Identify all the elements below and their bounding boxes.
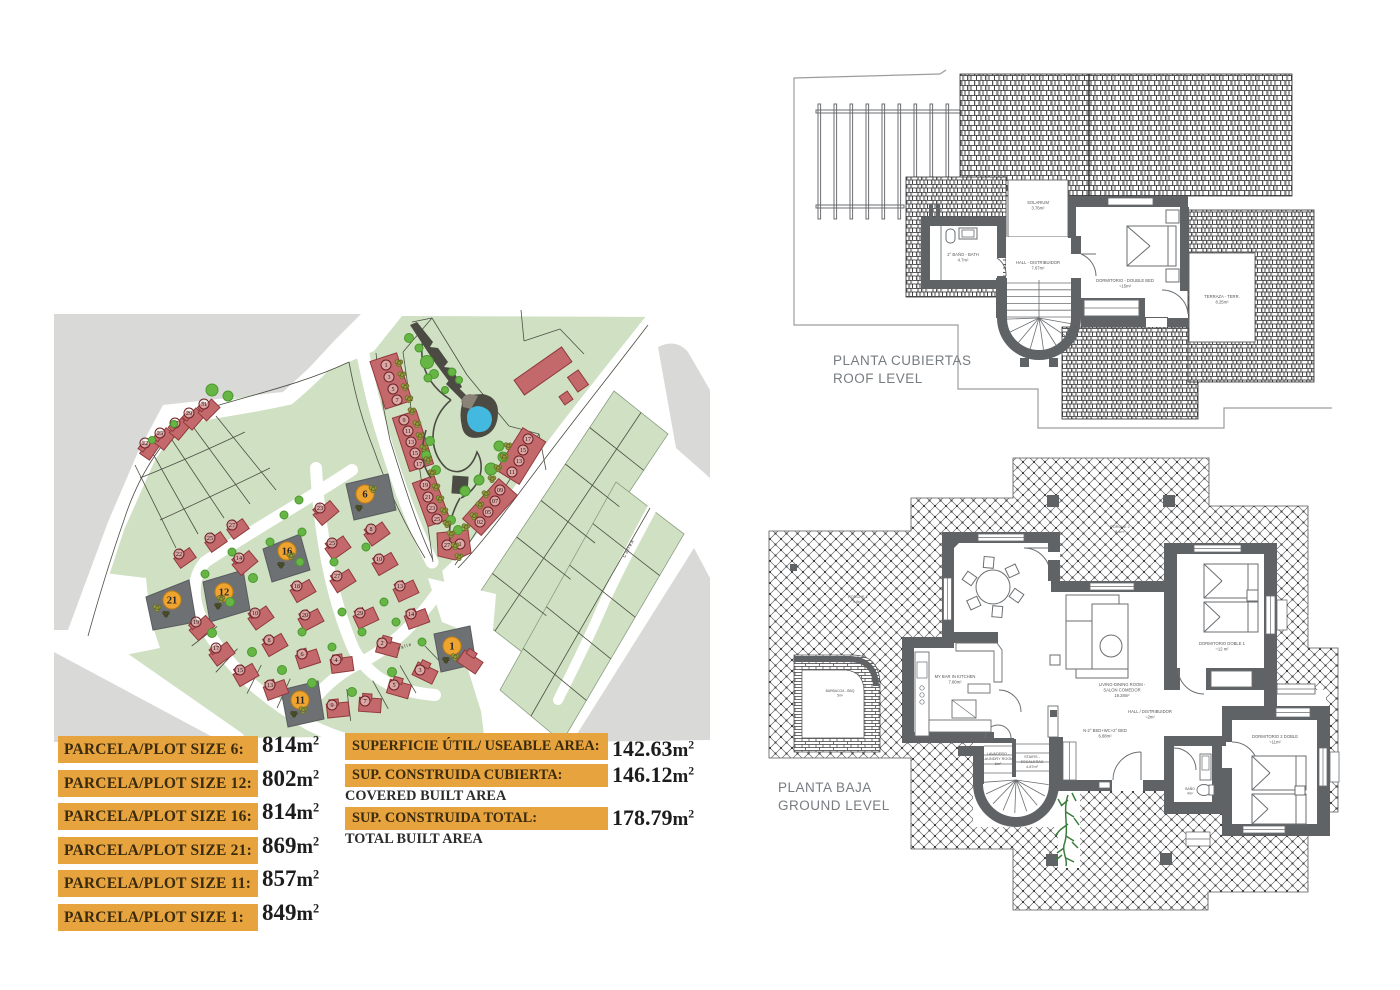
- svg-text:GROUND LEVEL: GROUND LEVEL: [778, 798, 890, 813]
- svg-text:ESCALERAS: ESCALERAS: [1021, 760, 1044, 764]
- svg-text:27: 27: [229, 522, 235, 529]
- svg-text:5m²: 5m²: [837, 694, 844, 698]
- svg-text:6: 6: [300, 651, 303, 658]
- svg-text:5: 5: [392, 682, 395, 689]
- svg-text:20: 20: [302, 612, 308, 619]
- svg-text:3: 3: [387, 374, 390, 381]
- svg-text:9: 9: [402, 417, 405, 424]
- svg-text:TERRAZA - TERR.: TERRAZA - TERR.: [1204, 294, 1240, 299]
- svg-text:LIVING-DINING ROOM -: LIVING-DINING ROOM -: [1099, 682, 1146, 687]
- svg-text:8: 8: [267, 637, 270, 644]
- svg-text:SALON COMEDOR: SALON COMEDOR: [1103, 687, 1140, 692]
- svg-text:21: 21: [167, 596, 178, 607]
- svg-text:DORMITORIO - DOUBLE BED: DORMITORIO - DOUBLE BED: [1096, 278, 1154, 283]
- svg-text:29: 29: [357, 610, 363, 617]
- svg-text:SOLARIUM: SOLARIUM: [1027, 200, 1049, 205]
- svg-text:13: 13: [408, 439, 414, 446]
- svg-text:18: 18: [294, 583, 300, 590]
- svg-text:27: 27: [444, 542, 450, 549]
- svg-text:22: 22: [142, 440, 148, 447]
- svg-text:15: 15: [412, 450, 418, 457]
- svg-text:9: 9: [330, 702, 333, 709]
- svg-text:1: 1: [449, 642, 454, 653]
- svg-text:HALL / DISTRIBUIDOR: HALL / DISTRIBUIDOR: [1128, 709, 1172, 714]
- svg-text:~12 m²: ~12 m²: [1215, 646, 1229, 651]
- svg-text:25: 25: [329, 540, 335, 547]
- svg-text:8.4m²: 8.4m²: [1115, 530, 1125, 534]
- svg-text:11: 11: [295, 696, 305, 707]
- svg-text:4: 4: [334, 657, 337, 664]
- svg-text:4m²: 4m²: [1187, 792, 1194, 796]
- svg-text:21: 21: [425, 494, 431, 501]
- svg-text:PORCHE 1: PORCHE 1: [848, 595, 867, 599]
- svg-text:DORMITORIO 2 DOBLE: DORMITORIO 2 DOBLE: [1252, 734, 1298, 739]
- svg-text:7: 7: [395, 397, 398, 404]
- svg-text:15: 15: [520, 447, 526, 454]
- svg-text:PLANTA BAJA: PLANTA BAJA: [778, 780, 872, 795]
- svg-text:4.87m²: 4.87m²: [1026, 765, 1039, 769]
- svg-text:4.7m²: 4.7m²: [958, 257, 969, 262]
- svg-text:BARBACOA - BBQ: BARBACOA - BBQ: [826, 689, 855, 693]
- svg-text:13: 13: [397, 583, 403, 590]
- svg-text:LAVADERO -: LAVADERO -: [987, 752, 1010, 756]
- svg-text:6: 6: [362, 490, 367, 501]
- svg-text:13: 13: [516, 458, 522, 465]
- svg-text:22: 22: [176, 551, 182, 558]
- svg-text:7.67m²: 7.67m²: [1031, 265, 1045, 270]
- svg-text:HALL - DISTRIBUIDOR: HALL - DISTRIBUIDOR: [1016, 260, 1060, 265]
- svg-text:PLANTA CUBIERTAS: PLANTA CUBIERTAS: [833, 353, 972, 368]
- svg-text:19.28m²: 19.28m²: [1114, 693, 1130, 698]
- svg-text:3: 3: [418, 667, 421, 674]
- svg-text:09: 09: [497, 487, 503, 494]
- svg-text:~15m²: ~15m²: [1119, 283, 1132, 288]
- svg-text:8: 8: [369, 526, 372, 533]
- svg-text:27: 27: [334, 573, 340, 580]
- svg-text:STAIRS -: STAIRS -: [1024, 755, 1040, 759]
- svg-text:13: 13: [267, 682, 273, 689]
- svg-text:23: 23: [317, 505, 323, 512]
- svg-text:02: 02: [477, 519, 483, 526]
- svg-text:N-2° BED+WC+2° BED: N-2° BED+WC+2° BED: [1083, 728, 1127, 733]
- svg-text:25: 25: [434, 516, 440, 523]
- svg-text:25: 25: [157, 430, 163, 437]
- svg-text:6m²: 6m²: [995, 762, 1002, 766]
- svg-text:2° BAÑO - BATH: 2° BAÑO - BATH: [947, 252, 979, 257]
- svg-text:7: 7: [363, 698, 366, 705]
- svg-text:9.6m²: 9.6m²: [853, 600, 863, 604]
- svg-text:ROOF LEVEL: ROOF LEVEL: [833, 371, 923, 386]
- svg-text:25: 25: [207, 535, 213, 542]
- svg-text:10: 10: [252, 610, 258, 617]
- svg-text:DORMITORIO DOBLE 1: DORMITORIO DOBLE 1: [1199, 641, 1246, 646]
- svg-text:LAUNDRY ROOM: LAUNDRY ROOM: [983, 757, 1014, 761]
- svg-text:17: 17: [416, 461, 422, 468]
- svg-text:3.76m²: 3.76m²: [1031, 205, 1045, 210]
- svg-text:05: 05: [485, 509, 491, 516]
- svg-text:11: 11: [405, 428, 411, 435]
- svg-text:14: 14: [408, 611, 414, 618]
- svg-text:7.80m²: 7.80m²: [948, 679, 962, 684]
- svg-text:~11m²: ~11m²: [1269, 739, 1281, 744]
- svg-text:17: 17: [213, 645, 219, 652]
- svg-text:07: 07: [492, 498, 498, 505]
- svg-text:11: 11: [509, 469, 515, 476]
- svg-text:PORCHE 2: PORCHE 2: [1110, 525, 1129, 529]
- svg-text:8.25m²: 8.25m²: [1215, 299, 1229, 304]
- svg-text:10: 10: [376, 556, 382, 563]
- svg-text:MY BAR IN KITCHEN: MY BAR IN KITCHEN: [935, 674, 976, 679]
- svg-text:15: 15: [237, 667, 243, 674]
- svg-text:23: 23: [429, 505, 435, 512]
- svg-text:BAÑO: BAÑO: [1185, 786, 1195, 791]
- svg-text:1: 1: [384, 362, 387, 369]
- svg-text:6.88m²: 6.88m²: [1098, 733, 1112, 738]
- svg-text:19: 19: [193, 619, 199, 626]
- svg-text:14: 14: [236, 555, 242, 562]
- svg-text:31: 31: [201, 401, 207, 408]
- svg-text:29: 29: [186, 410, 192, 417]
- svg-text:19: 19: [422, 482, 428, 489]
- svg-text:5: 5: [391, 386, 394, 393]
- svg-text:2: 2: [380, 640, 383, 647]
- svg-text:~2m²: ~2m²: [1145, 714, 1155, 719]
- svg-text:17: 17: [525, 436, 531, 443]
